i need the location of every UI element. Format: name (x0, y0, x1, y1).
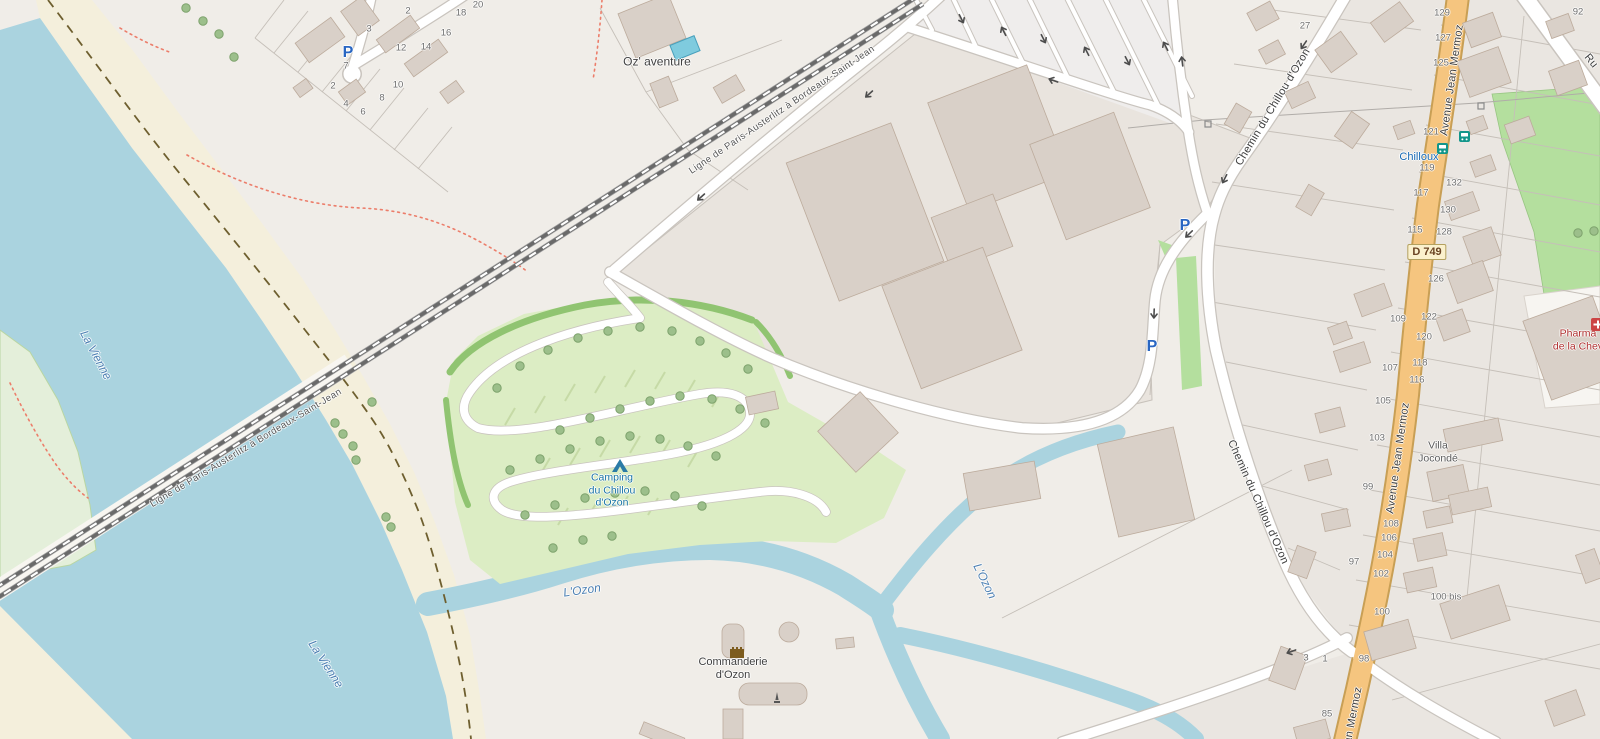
map-canvas[interactable] (0, 0, 1600, 739)
map-viewport[interactable]: La VienneLa VienneL'OzonL'OzonAvenue Jea… (0, 0, 1600, 739)
